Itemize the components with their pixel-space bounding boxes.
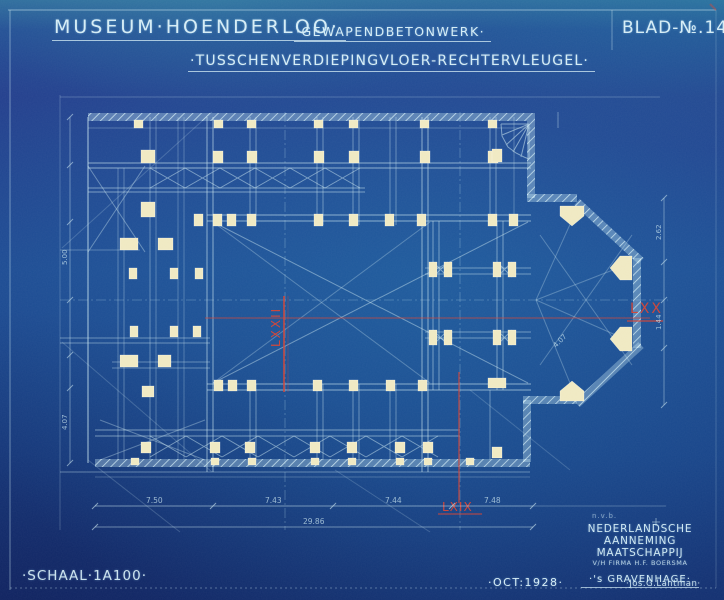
work-type-label: ·GEWAPENDBETONWERK· (294, 24, 491, 42)
drawing-title: ·TUSSCHENVERDIEPINGVLOER-RECHTERVLEUGEL· (188, 53, 595, 72)
sheet-number: BLAD-№.14. (622, 18, 724, 38)
company-name-line3: V/H FIRMA H.F. BOERSMA (560, 559, 720, 567)
date-label: ·OCT:1928· (488, 576, 564, 589)
blueprint-sheet: LXXII LXIX LXX (0, 0, 724, 600)
floor-plan-drawing: LXXII LXIX LXX (0, 0, 724, 600)
company-name-line1: NEDERLANDSCHE (560, 523, 720, 535)
grain-overlay (0, 0, 724, 600)
company-name-line2: AANNEMING MAATSCHAPPIJ (560, 535, 720, 559)
scale-label: ·SCHAAL·1A100· (22, 568, 147, 584)
signature: ·Jos.G.Lantman· (626, 579, 701, 589)
stamp-note: n.v.b. (592, 512, 617, 520)
